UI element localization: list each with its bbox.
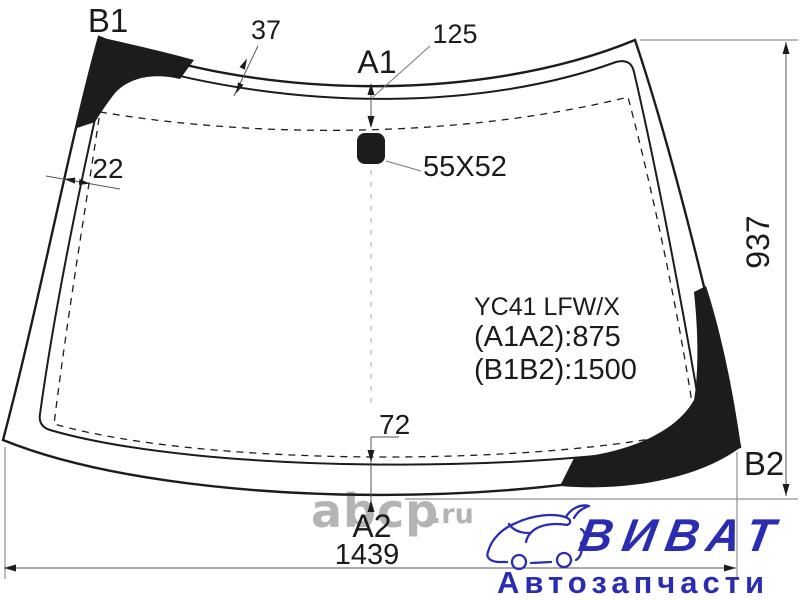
watermark-suffix: .ru (431, 499, 474, 530)
dim-55x52-label: 55X52 (423, 151, 507, 183)
dim-1439-label: 1439 (335, 539, 400, 571)
arrow-down-icon (783, 484, 790, 496)
logo-tagline-text: Автозапчасти (497, 565, 769, 600)
leader-55x52-line (386, 161, 421, 171)
windshield-diagram: abcp .ru (0, 0, 800, 600)
arrow-left-icon (64, 178, 75, 184)
logo-brand-text: ВИВАТ (575, 509, 789, 561)
arrow-up-icon (783, 42, 790, 54)
arrow-up-icon (368, 83, 375, 95)
label-b2: B2 (744, 445, 784, 482)
part-a1a2: (A1A2):875 (474, 321, 621, 353)
vendor-logo: ВИВАТ Автозапчасти (487, 505, 788, 600)
arrow-down-icon (368, 450, 375, 462)
arrow-left-icon (4, 565, 16, 572)
arrow-up-icon (240, 59, 248, 70)
dim-72-label: 72 (379, 409, 410, 440)
dim-37-label: 37 (251, 15, 281, 45)
watermark: abcp .ru (311, 484, 474, 538)
label-b1: B1 (88, 2, 128, 39)
part-code: YC41 LFW/X (474, 293, 620, 321)
dim-937-label: 937 (740, 215, 776, 268)
dim-22-label: 22 (92, 153, 123, 184)
part-b1b2: (B1B2):1500 (474, 354, 637, 386)
mirror-mount-pad (357, 133, 385, 164)
car-outline-icon (487, 505, 589, 569)
label-a1: A1 (357, 44, 396, 80)
dim-125-label: 125 (432, 19, 477, 49)
arrow-down-icon (368, 116, 375, 128)
